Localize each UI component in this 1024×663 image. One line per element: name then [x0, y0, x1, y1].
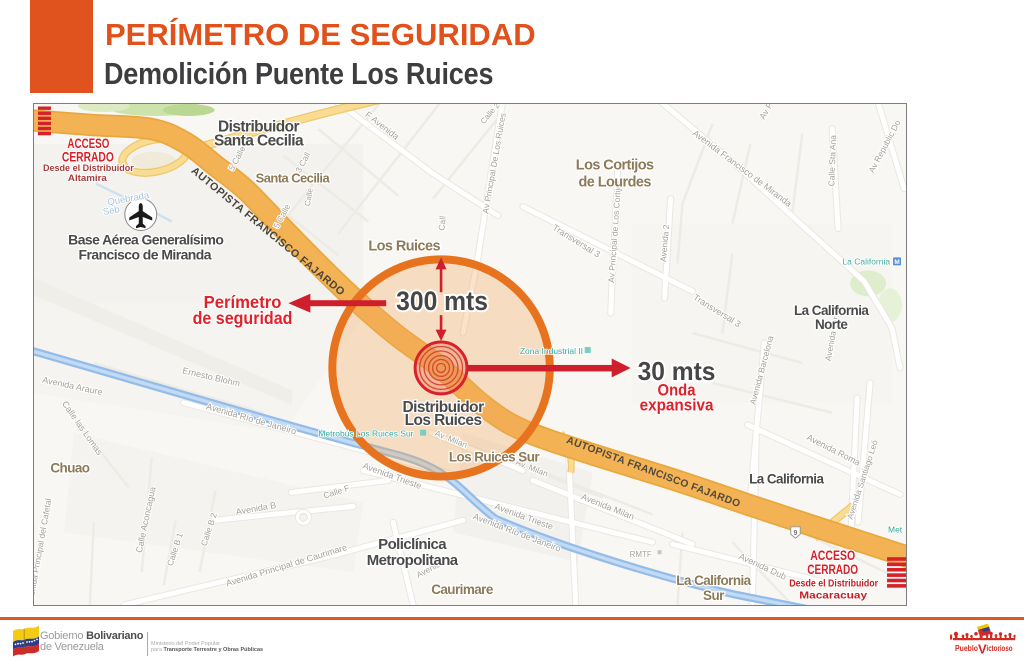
svg-text:de seguridad: de seguridad [193, 308, 293, 328]
svg-text:CERRADO: CERRADO [807, 562, 858, 577]
svg-text:CERRADO: CERRADO [62, 149, 114, 164]
svg-text:Santa Cecilia: Santa Cecilia [256, 171, 331, 186]
svg-text:La California: La California [676, 573, 751, 588]
svg-text:de Lourdes: de Lourdes [578, 175, 651, 191]
svg-text:Santa Cecilia: Santa Cecilia [214, 132, 304, 149]
svg-text:Calle Sta Ana: Calle Sta Ana [826, 135, 838, 187]
svg-text:Chuao: Chuao [50, 461, 89, 476]
svg-text:ACCESO: ACCESO [810, 548, 855, 563]
svg-text:Los Ruices Sur: Los Ruices Sur [449, 450, 541, 465]
svg-text:M: M [894, 259, 899, 266]
svg-text:Norte: Norte [815, 317, 848, 332]
svg-text:Los Ruices: Los Ruices [368, 238, 440, 254]
svg-text:ictorioso: ictorioso [987, 644, 1013, 653]
svg-text:Call: Call [436, 215, 447, 231]
svg-text:Altamira: Altamira [68, 173, 108, 184]
svg-text:Sur: Sur [703, 588, 725, 603]
svg-text:La California: La California [842, 256, 890, 266]
svg-text:La California: La California [794, 303, 869, 318]
svg-text:Metrobús Los Ruices Sur: Metrobús Los Ruices Sur [318, 429, 413, 439]
svg-text:Pueblo: Pueblo [955, 644, 978, 653]
svg-text:Los Cortijos: Los Cortijos [576, 158, 654, 174]
svg-text:La California: La California [749, 471, 824, 486]
svg-text:Policlínica: Policlínica [378, 536, 447, 553]
svg-text:RMTF: RMTF [630, 550, 652, 559]
svg-text:Desde el Distribuidor: Desde el Distribuidor [789, 579, 878, 590]
svg-text:Caurimare: Caurimare [431, 582, 494, 597]
svg-text:9: 9 [794, 530, 798, 537]
svg-text:30 mts: 30 mts [638, 358, 716, 386]
svg-text:Francisco de Miranda: Francisco de Miranda [79, 246, 212, 262]
svg-text:Zona Industrial II: Zona Industrial II [520, 346, 583, 356]
svg-text:Macaracuay: Macaracuay [799, 591, 867, 602]
svg-text:Base Aérea Generalísimo: Base Aérea Generalísimo [68, 231, 223, 247]
svg-text:Met: Met [888, 524, 903, 534]
svg-text:Los Ruices: Los Ruices [405, 412, 482, 429]
svg-text:Metropolitana: Metropolitana [367, 552, 459, 569]
svg-text:300 mts: 300 mts [396, 286, 488, 316]
svg-text:expansiva: expansiva [640, 395, 714, 414]
